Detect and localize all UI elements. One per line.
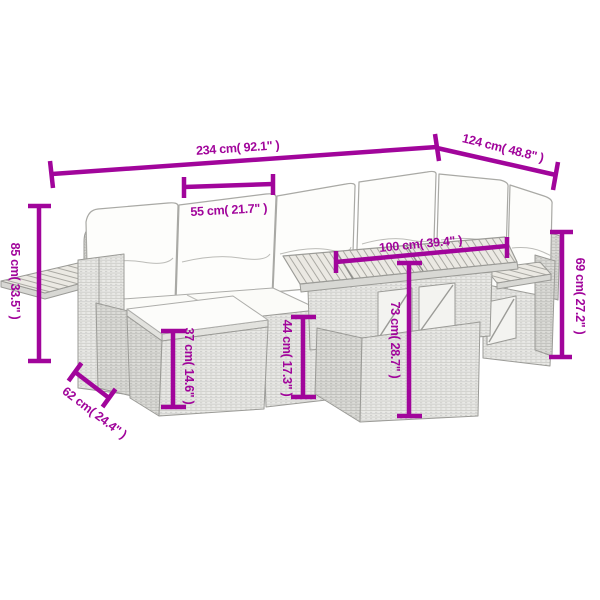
dim-total-depth-label: 124 cm( 48.8" ) bbox=[461, 131, 545, 165]
dim-ottoman-height-label: 37 cm( 14.6" ) bbox=[182, 328, 196, 405]
dim-back-height-label: 85 cm( 33.5" ) bbox=[8, 243, 22, 320]
dim-seat-height-label: 44 cm( 17.3" ) bbox=[280, 320, 294, 397]
dim-table-height-label: 73 cm( 28.7" ) bbox=[388, 302, 402, 379]
dim-total-width-label: 234 cm( 92.1" ) bbox=[196, 138, 280, 158]
diagram-canvas: 234 cm( 92.1" ) 124 cm( 48.8" ) 55 cm( 2… bbox=[0, 0, 600, 600]
ottoman-front bbox=[159, 327, 268, 416]
product-dimension-diagram: 234 cm( 92.1" ) 124 cm( 48.8" ) 55 cm( 2… bbox=[0, 0, 600, 600]
table-box-left bbox=[315, 328, 362, 422]
dim-tick bbox=[553, 162, 558, 190]
dim-right-height-label: 69 cm( 27.2" ) bbox=[573, 258, 587, 335]
table-box-front bbox=[360, 322, 480, 422]
dim-line bbox=[184, 184, 273, 187]
ottoman bbox=[127, 296, 268, 416]
